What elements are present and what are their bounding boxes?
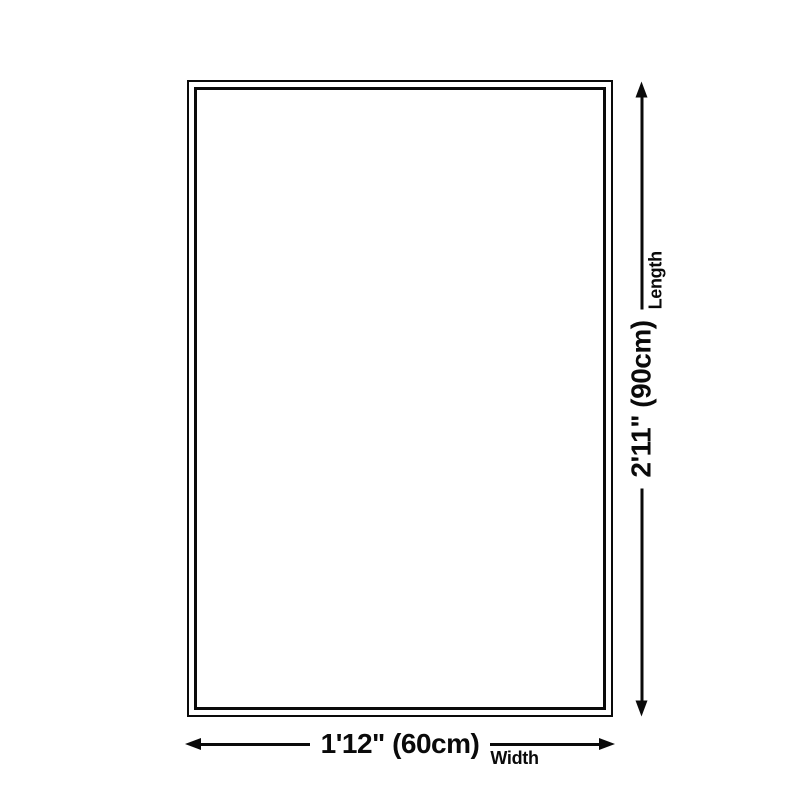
- length-dimension-line: 2'11" (90cm) Length: [624, 82, 660, 717]
- length-line-lower-segment: [640, 489, 643, 701]
- arrow-left-icon: [185, 738, 201, 750]
- width-dimension-line: 1'12" (60cm) Width: [185, 726, 615, 762]
- width-line-left-segment: [201, 743, 310, 746]
- rug-rectangle-inner-border: [194, 87, 606, 710]
- rug-rectangle-outer-border: [187, 80, 613, 717]
- length-value: 2'11" (90cm): [628, 320, 656, 477]
- arrow-down-icon: [636, 701, 648, 717]
- size-diagram: 1'12" (60cm) Width 2'11" (90cm) Length: [0, 0, 800, 800]
- arrow-up-icon: [636, 82, 648, 98]
- width-label: Width: [490, 748, 538, 769]
- width-value: 1'12" (60cm): [321, 730, 480, 758]
- length-label: Length: [645, 251, 666, 309]
- arrow-right-icon: [599, 738, 615, 750]
- length-line-upper-segment: Length: [640, 98, 643, 310]
- width-line-right-segment: Width: [490, 743, 599, 746]
